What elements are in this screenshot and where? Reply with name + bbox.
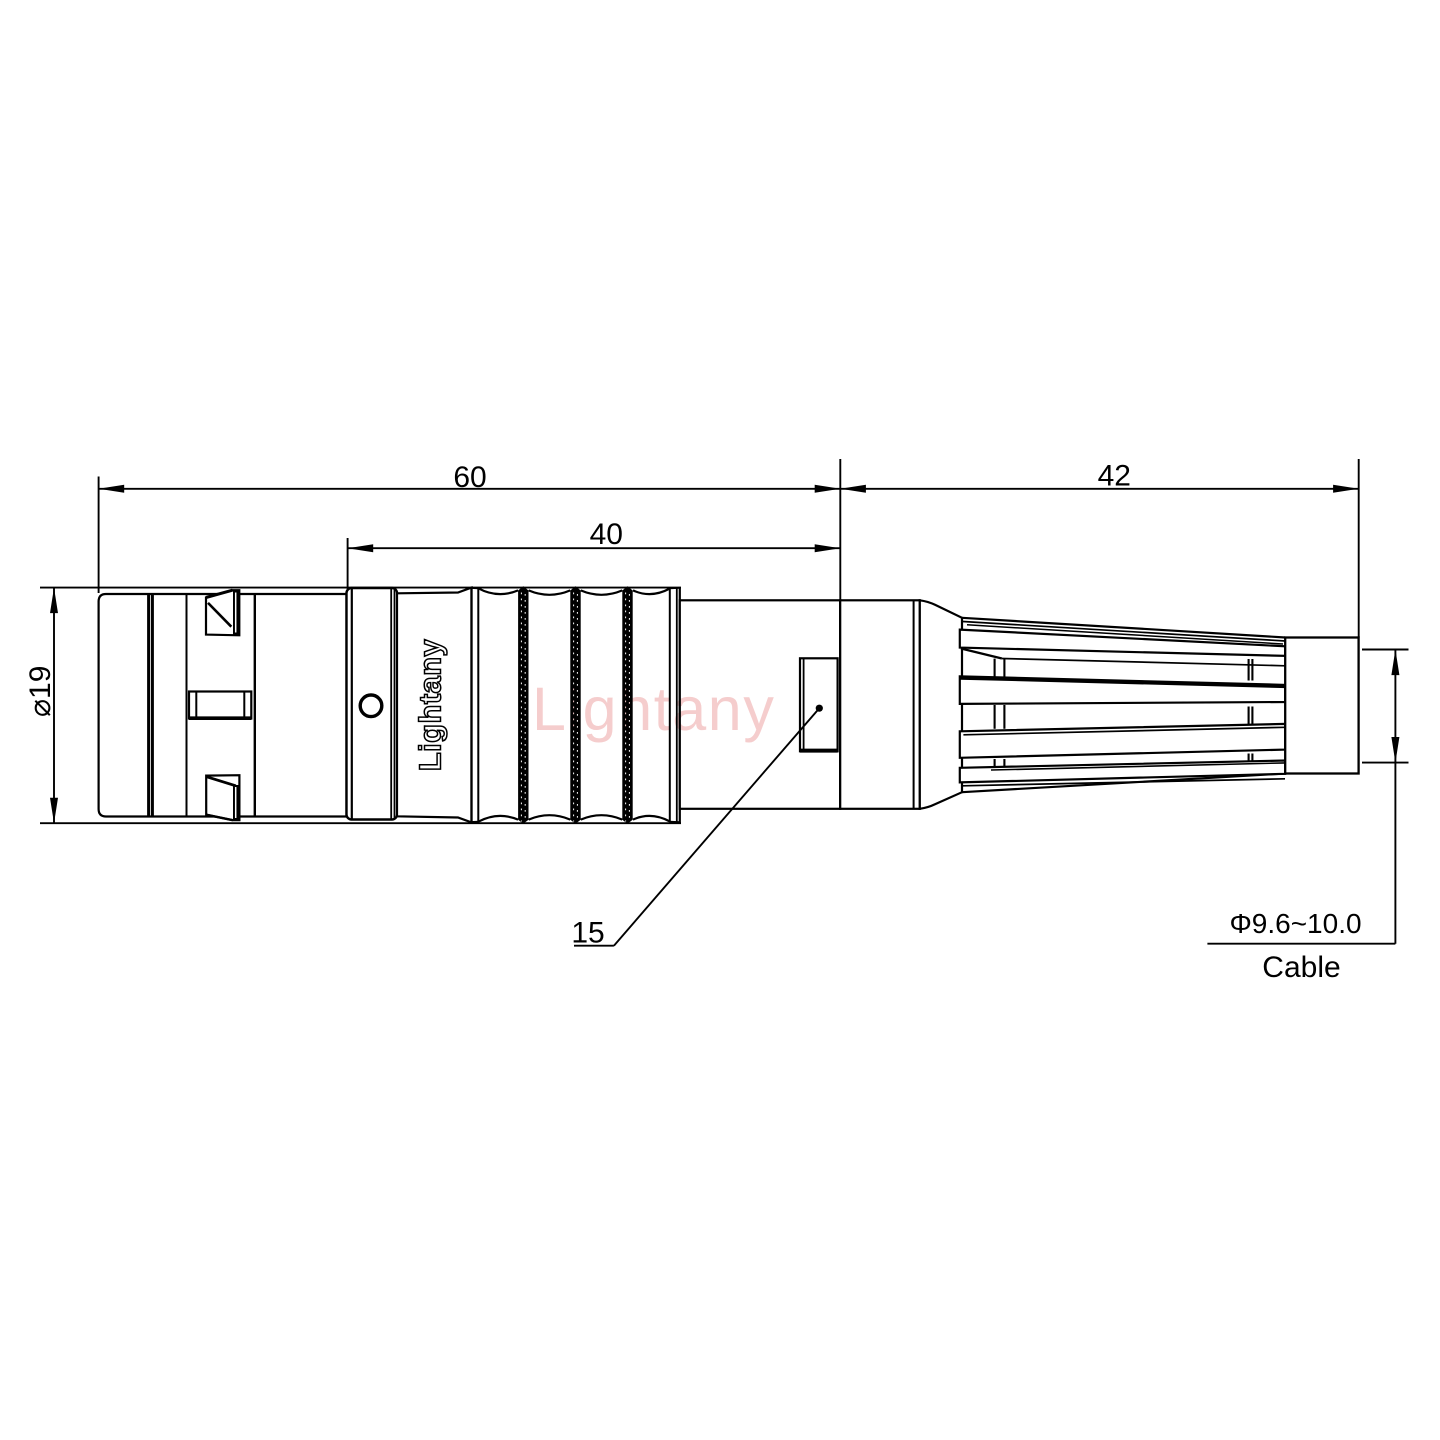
svg-text:Cable: Cable [1262,951,1340,984]
svg-text:60: 60 [453,461,486,494]
svg-text:40: 40 [590,518,623,551]
svg-text:15: 15 [571,917,604,950]
svg-text:Φ9.6~10.0: Φ9.6~10.0 [1229,908,1361,939]
svg-text:Lightany: Lightany [413,638,448,771]
svg-text:⌀19: ⌀19 [24,666,57,717]
svg-text:42: 42 [1098,460,1131,493]
